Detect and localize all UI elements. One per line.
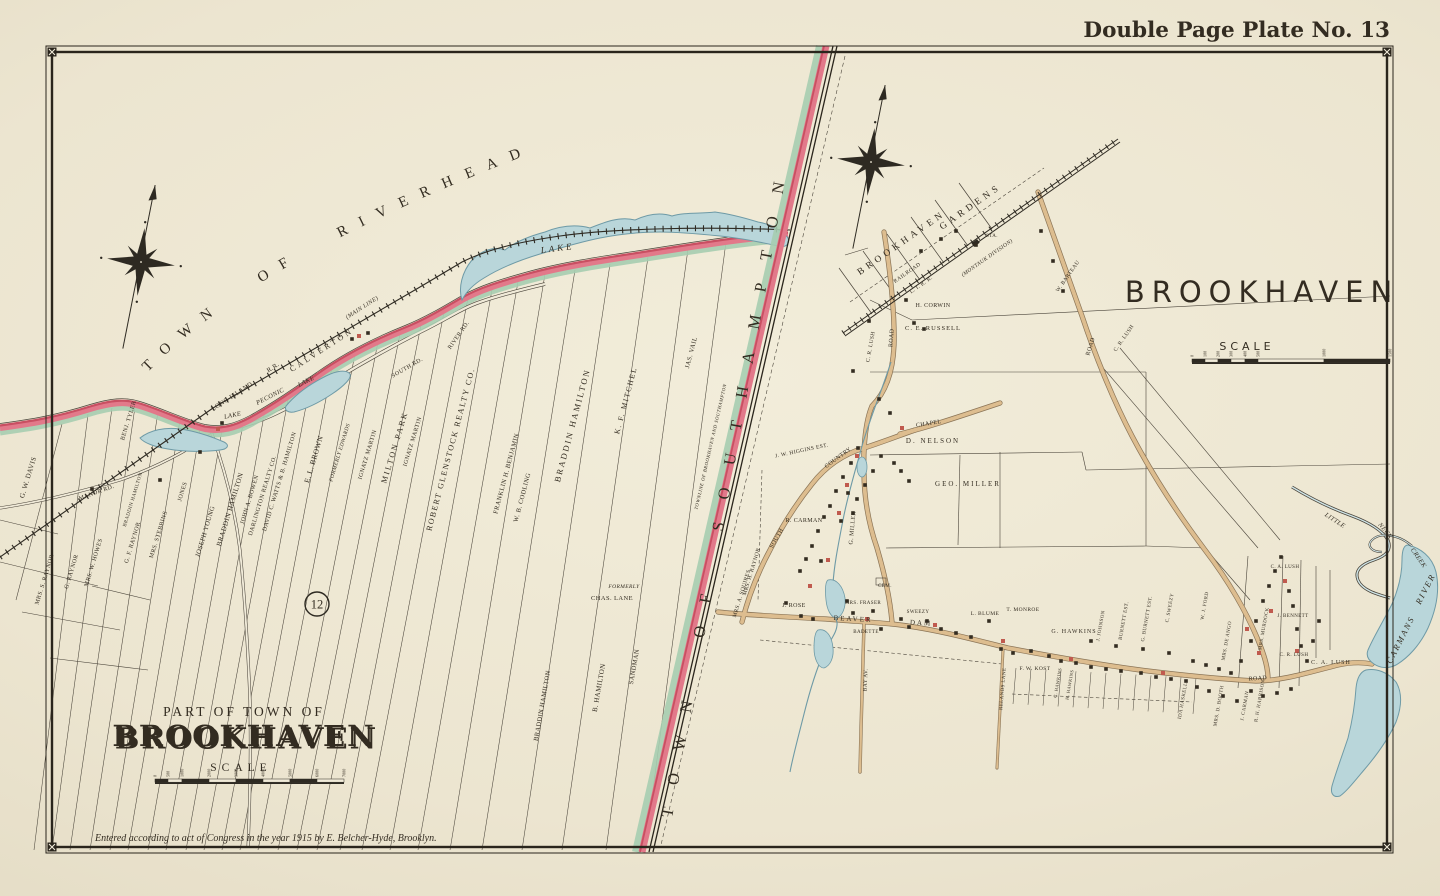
map-label: L. BLUME (971, 611, 1000, 617)
plate-ref-number: 12 (311, 598, 324, 612)
map-label: G. HAWKINS (1051, 629, 1096, 635)
map-label: MRS. DE ANGO (1222, 621, 1234, 661)
plate-title: Double Page Plate No. 13 (1083, 18, 1390, 43)
map-label: BRADDIN HAMILTON (552, 367, 592, 483)
map-label: BRADDIN HAMILTON (215, 472, 245, 548)
scale-tick: 1000 (180, 769, 185, 777)
map-label: BURNETT EST. (1119, 601, 1131, 640)
map-label: IDA HASKELL (1178, 682, 1189, 719)
map-label: MRS. W. HOWES (84, 538, 104, 588)
map-label: C. A. LUSH (1271, 565, 1300, 570)
map-label: W. J. FORD (1201, 591, 1211, 620)
map-label: T. MONROE (1006, 607, 1039, 613)
scale-tick: 100 (1203, 351, 1208, 357)
scale-tick: 2000 (207, 769, 212, 777)
map-label: G. BURNETT EST. (1141, 596, 1154, 642)
map-label: SOUTH RD. (391, 357, 424, 380)
map-label: CHAS. LANE (591, 595, 633, 602)
map-label: W. B. CODLING (513, 472, 533, 523)
map-label: BRADDIN HAMILTON (123, 472, 144, 528)
map-label: LAKE (222, 410, 242, 421)
map-label: C. E. RUSSELL (905, 325, 961, 332)
scale-tick: 7000 (342, 769, 347, 777)
map-label: BAY AV. (863, 668, 870, 691)
left-compass-rose (91, 180, 190, 354)
map-label: K. F. MITCHEL (612, 366, 639, 435)
map-label: B. HAMILTON (591, 663, 607, 713)
map-label: IGNATZ MARTIN (358, 429, 379, 480)
map-label: GEO. MILLER (935, 480, 1001, 488)
map-label: ROBERT GLENSTOCK REALTY CO. (424, 367, 476, 532)
map-label: DAM (910, 618, 933, 627)
right-compass-rose (821, 80, 920, 254)
map-label: C. R. LUSH (1280, 653, 1309, 658)
map-label: CEM. (878, 584, 892, 589)
scale-tick: 4000 (261, 769, 266, 777)
map-label: JOSEPH YOUNG (195, 505, 217, 558)
map-label: MRS. FRASER (845, 601, 882, 606)
map-label: H. HAWKINS (1064, 669, 1074, 700)
scale-tick: 500 (1256, 351, 1261, 357)
map-label: C. R. LUSH (865, 331, 876, 363)
map-label: GARDENS (938, 182, 1003, 232)
map-label: G. RAYNOR (64, 554, 80, 590)
map-label: G. W. DAVIS (18, 456, 38, 499)
map-label: J. ROSE (782, 603, 805, 609)
map-label: C. A. LUSH (1311, 660, 1351, 666)
dashed-lines (758, 168, 1192, 702)
cartouche-prefix: Part of Town of (163, 704, 325, 719)
long-island-railroad (0, 228, 790, 557)
map-label: RIVER RD. (447, 320, 471, 351)
scale-tick: 6000 (315, 769, 320, 777)
map-label: J. W. HIGGINS EST. (775, 442, 829, 459)
map-label: FORMERLY (607, 584, 640, 590)
scale-tick: 1000 (1322, 349, 1327, 357)
boundary-title: TOWN OF SOUTHAMPTON (657, 158, 792, 819)
copyright-line: Entered according to act of Congress in … (94, 833, 437, 844)
map-label: MRS. D. BOOTH (1213, 685, 1225, 727)
map-label: D. NELSON (906, 437, 960, 445)
map-label: R. CARMAN (786, 518, 823, 524)
map-label: E. L. BROWN (302, 434, 325, 484)
map-label: J. CARMAN (1240, 691, 1250, 721)
map-label: COUNTRY (824, 446, 853, 470)
map-label: SANDMAN (628, 649, 641, 685)
map-canvas: 12 TOWN OF RIVERHEAD Part of Town of BRO… (0, 0, 1440, 896)
map-label: LONG ISLAND (210, 381, 254, 413)
scale-tick: 0 (1190, 355, 1195, 357)
lot-lines (0, 242, 726, 850)
left-cartouche: Part of Town of BROOKHAVEN BROOKHAVEN Sc… (112, 704, 378, 774)
map-label: JONES (177, 481, 189, 502)
right-map-title: BROOKHAVEN (1125, 275, 1399, 309)
map-label: SOUTH (769, 527, 785, 549)
map-label: (MAIN LINE) (345, 295, 380, 321)
buildings-red (216, 334, 1299, 675)
scale-tick: 300 (1229, 351, 1234, 357)
scale-tick: 3000 (234, 769, 239, 777)
cartouche-title: BROOKHAVEN (112, 719, 375, 753)
scale-tick: 0 (153, 775, 158, 777)
atlas-page: 12 TOWN OF RIVERHEAD Part of Town of BRO… (0, 0, 1440, 896)
map-label: G. MILLER (849, 511, 858, 545)
map-label: STA. (986, 234, 998, 239)
map-label: (MONTAUK DIVISION) (960, 237, 1014, 278)
map-label: W. BARTEAU (1055, 260, 1081, 294)
map-label: MRS. STEBBINS (149, 510, 169, 559)
map-label: MRS. MURDOCK (1258, 607, 1270, 651)
plate-ref-marker: 12 (305, 592, 329, 616)
map-label: SWEEZY (907, 610, 930, 615)
map-label: J. BENNETT (1277, 614, 1308, 619)
scale-tick: 400 (1243, 351, 1248, 357)
map-label: FRANKLIN H. BENJAMIN (492, 432, 520, 514)
map-label: MILTON PARK (379, 410, 409, 484)
scale-tick: 200 (1216, 351, 1221, 357)
map-label: BRADDIN HAMILTON (533, 670, 552, 742)
scale-tick: 5000 (288, 769, 293, 777)
map-label: F. W. KOST (1019, 666, 1050, 672)
map-label: JAS. VAIL (684, 336, 699, 369)
map-label: H. CORWIN (916, 303, 951, 309)
map-label: J. JOHNSON (1096, 610, 1106, 642)
scale-tick: 1500 (1388, 349, 1393, 357)
map-label: C. SWEEZY (1165, 593, 1175, 623)
map-label: C. R. LUSH (1113, 324, 1136, 353)
map-label: BADETTE (853, 630, 879, 635)
map-label: C. HAWKINS (1052, 667, 1062, 698)
scale-tick: 500 (166, 771, 171, 777)
map-label: BROOKHAVEN (856, 209, 948, 278)
map-label: R. H. HARRISON (1254, 679, 1266, 722)
